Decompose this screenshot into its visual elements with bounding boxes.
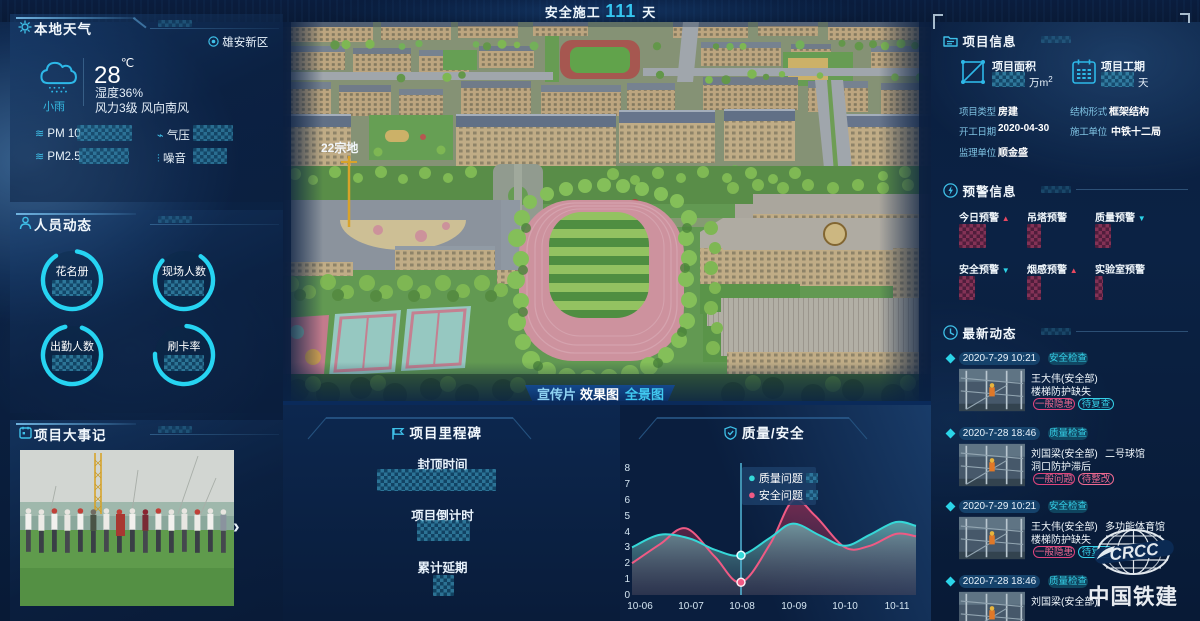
svg-text:4: 4: [624, 527, 630, 538]
svg-text:刷卡率: 刷卡率: [168, 339, 201, 353]
svg-text:中国铁建: 中国铁建: [1088, 584, 1178, 609]
svg-text:7: 7: [624, 479, 630, 490]
svg-text:10-08: 10-08: [729, 601, 755, 612]
svg-text:2: 2: [624, 558, 630, 569]
svg-text:全景图: 全景图: [624, 387, 664, 402]
svg-text:花名册: 花名册: [56, 264, 89, 278]
svg-text:宣传片: 宣传片: [537, 387, 576, 402]
svg-text:效果图: 效果图: [580, 387, 619, 402]
svg-text:6: 6: [624, 495, 630, 506]
svg-text:10-10: 10-10: [832, 601, 858, 612]
svg-text:10-11: 10-11: [885, 601, 910, 612]
svg-text:0: 0: [624, 590, 630, 601]
svg-text:10-09: 10-09: [781, 601, 807, 612]
svg-text:8: 8: [624, 463, 630, 474]
svg-text:现场人数: 现场人数: [162, 264, 206, 278]
svg-text:3: 3: [624, 542, 630, 553]
svg-text:1: 1: [624, 574, 630, 585]
svg-text:10-06: 10-06: [627, 601, 653, 612]
svg-text:出勤人数: 出勤人数: [50, 339, 94, 353]
svg-text:5: 5: [624, 511, 630, 522]
svg-text:22宗地: 22宗地: [321, 140, 358, 155]
svg-text:10-07: 10-07: [678, 601, 704, 612]
